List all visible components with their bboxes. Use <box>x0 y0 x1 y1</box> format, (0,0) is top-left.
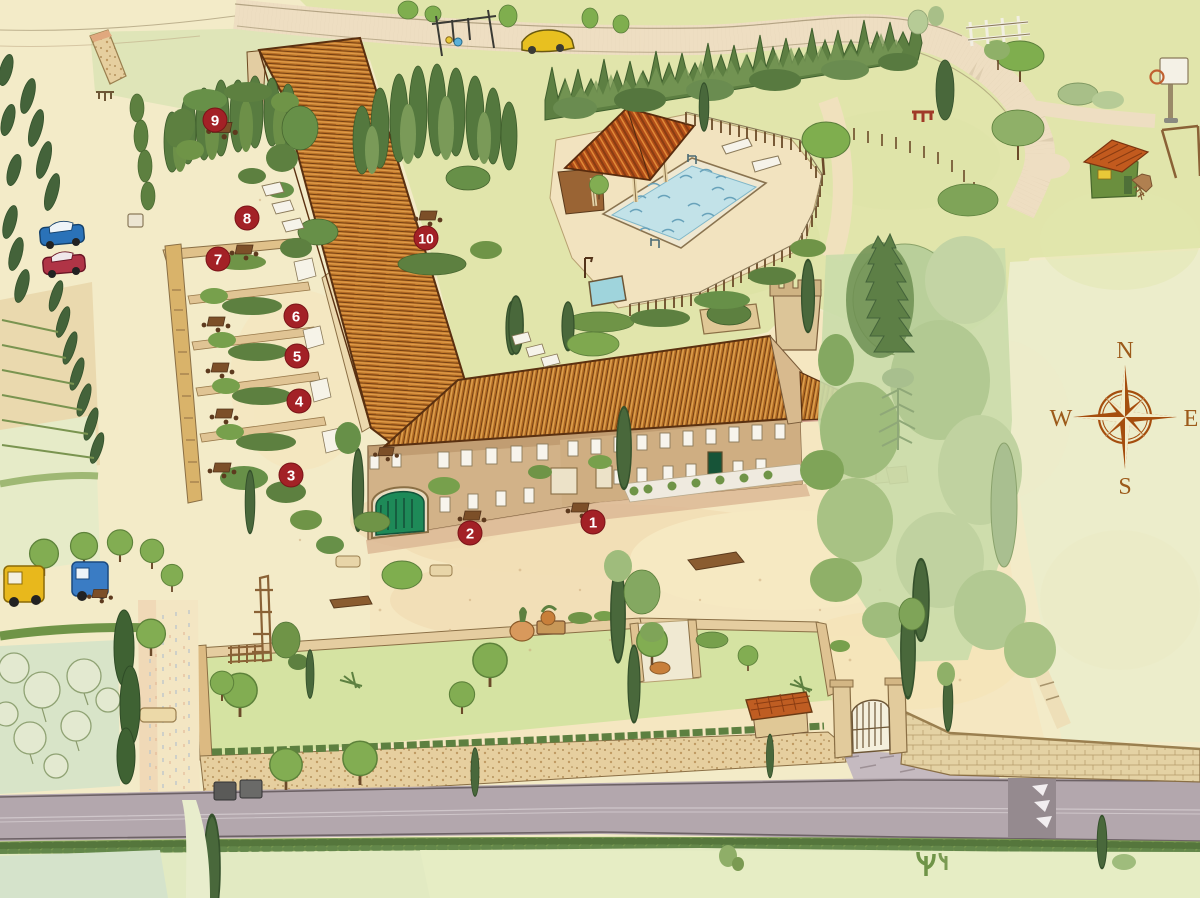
svg-text:10: 10 <box>418 231 434 247</box>
svg-text:1: 1 <box>589 515 597 532</box>
svg-text:6: 6 <box>292 309 300 326</box>
svg-text:4: 4 <box>295 394 304 411</box>
svg-text:2: 2 <box>466 526 474 543</box>
svg-text:W: W <box>1050 406 1073 432</box>
svg-text:S: S <box>1118 474 1131 500</box>
svg-text:9: 9 <box>211 113 219 130</box>
svg-text:3: 3 <box>287 468 295 485</box>
svg-text:8: 8 <box>243 211 251 228</box>
svg-text:7: 7 <box>214 252 222 269</box>
svg-text:E: E <box>1184 406 1199 432</box>
svg-text:N: N <box>1116 338 1133 364</box>
svg-text:5: 5 <box>293 349 301 366</box>
